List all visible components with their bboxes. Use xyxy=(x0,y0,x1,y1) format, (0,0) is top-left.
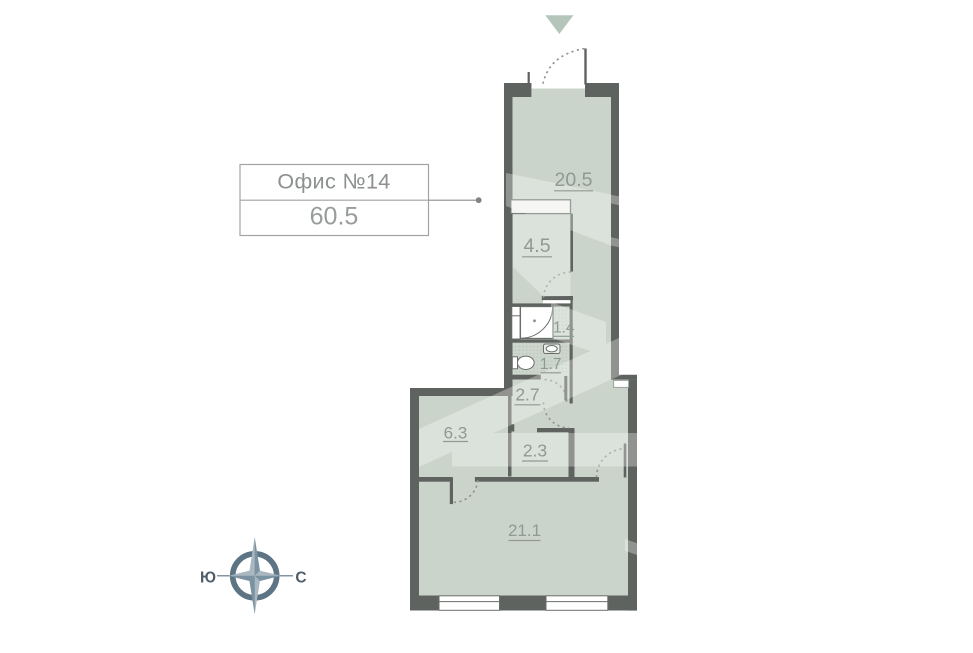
svg-text:4.5: 4.5 xyxy=(523,235,550,257)
svg-text:1.7: 1.7 xyxy=(540,356,562,373)
svg-text:2.7: 2.7 xyxy=(515,384,539,404)
svg-text:С: С xyxy=(295,569,306,586)
svg-text:1.4: 1.4 xyxy=(553,320,575,337)
svg-text:Офис №14: Офис №14 xyxy=(277,170,390,194)
svg-text:Ю: Ю xyxy=(200,569,216,586)
svg-text:6.3: 6.3 xyxy=(444,424,468,443)
svg-text:2.3: 2.3 xyxy=(523,441,547,461)
svg-text:60.5: 60.5 xyxy=(310,203,359,231)
svg-text:20.5: 20.5 xyxy=(555,169,593,191)
svg-text:21.1: 21.1 xyxy=(508,521,541,540)
